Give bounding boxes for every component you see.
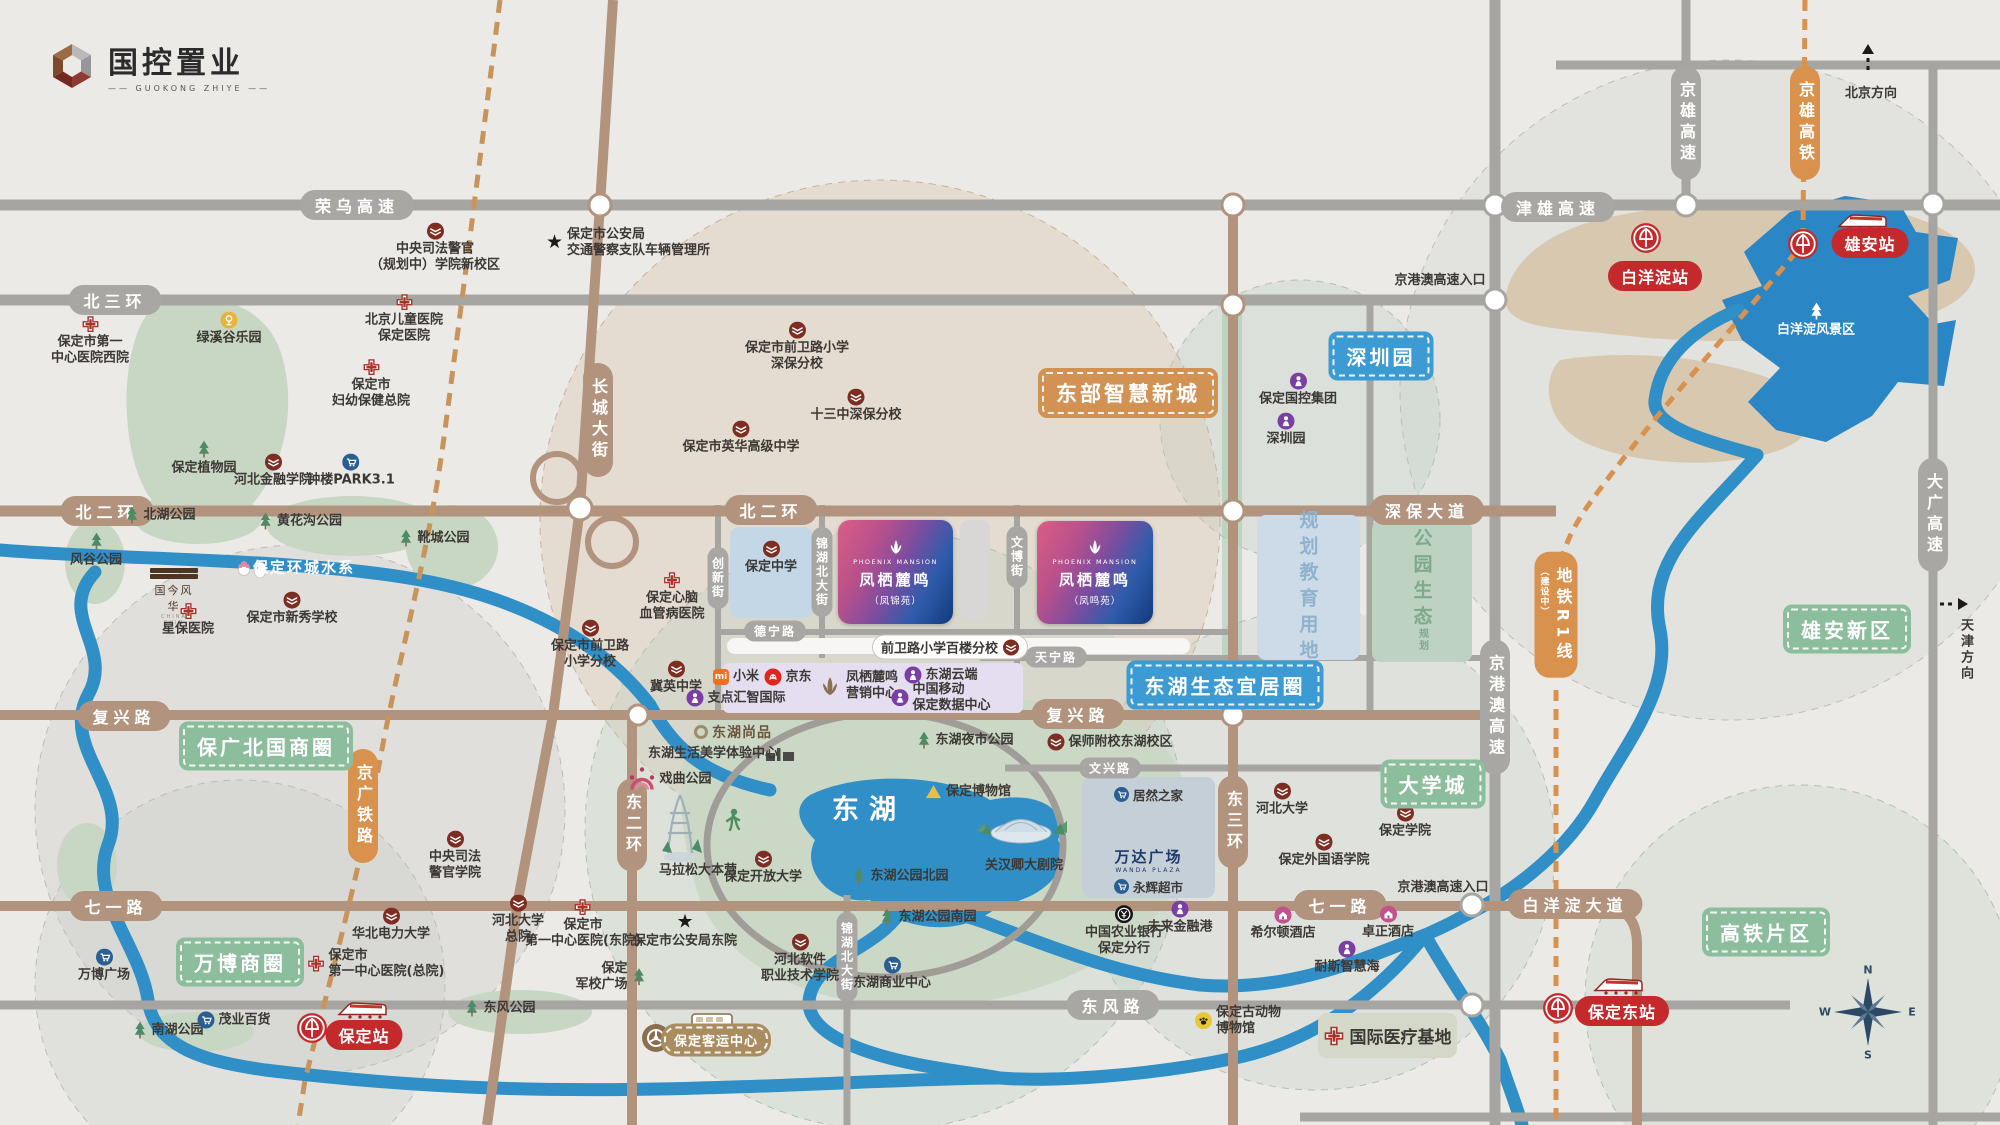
- road-label-text: 白洋淀大道: [1522, 896, 1627, 915]
- area-badge: 高铁片区: [1706, 912, 1826, 953]
- road-label-text: 复兴路: [92, 708, 155, 727]
- map-poi: 星保医院: [162, 603, 214, 638]
- map-poi: 河北软件 职业技术学院: [761, 934, 839, 985]
- international-medical-base-block: 国际医疗基地: [1318, 1013, 1457, 1058]
- enterprise-icon: [686, 690, 703, 707]
- railway-station-icon: [1630, 222, 1662, 254]
- tree-icon: [464, 999, 479, 1018]
- train-illustration: [1591, 976, 1645, 997]
- map-poi: 深圳园: [1266, 413, 1305, 448]
- poi-label: 保定博物馆: [946, 784, 1011, 800]
- compass-w: W: [1819, 1006, 1831, 1019]
- property-name-en: PHOENIX MANSION: [1053, 558, 1138, 566]
- area-badge: 东部智慧新城: [1042, 372, 1214, 414]
- poi-label: 深圳园: [1266, 432, 1305, 448]
- poi-label: 保定市新秀学校: [246, 611, 337, 627]
- map-poi: 河北大学: [1256, 783, 1308, 818]
- road-label: 复兴路: [77, 701, 170, 731]
- map-poi: 靴城公园: [398, 529, 469, 548]
- tree-icon: [1808, 302, 1823, 321]
- road-label-text: 津雄高速: [1516, 199, 1600, 218]
- road-label-text: 京广铁路: [354, 764, 373, 848]
- wanda-plaza-block: 居然之家 万达广场 WANDA PLAZA 永辉超市: [1082, 777, 1215, 898]
- poi-label: 东湖商业中心: [853, 976, 931, 992]
- poi-label: 希尔顿酒店: [1250, 926, 1315, 942]
- road-label: 长城大街: [583, 363, 613, 477]
- tree-icon: [916, 731, 931, 750]
- map-poi: 戏曲公园: [628, 766, 711, 793]
- station-badge: 保定东站: [1575, 996, 1669, 1026]
- road-label: 复兴路: [1031, 699, 1124, 729]
- tianjin-direction-label: 天津方向: [1956, 618, 1975, 682]
- poi-label: 河北金融学院: [234, 473, 312, 489]
- road-label: 德宁路: [744, 621, 806, 642]
- developer-name-en: —— GUOKONG ZHIYE ——: [108, 84, 270, 93]
- map-poi: 东湖公园北园: [851, 867, 948, 886]
- map-poi: 卓正酒店: [1362, 906, 1414, 941]
- poi-label: 保定市 第一中心医院(东院): [525, 918, 641, 950]
- school-icon: [283, 592, 300, 609]
- road-label-text: 锦湖北大街: [815, 537, 829, 607]
- map-poi: 保定市英华高级中学: [682, 421, 799, 456]
- shopping-icon: [95, 949, 112, 966]
- road-label: 京广铁路: [348, 749, 378, 863]
- school-icon: [1315, 834, 1332, 851]
- map-poi: 东湖商业中心: [853, 957, 931, 992]
- school-icon: [762, 541, 779, 558]
- wanda-plaza-en-label: WANDA PLAZA: [1082, 867, 1215, 874]
- jd-icon: [764, 669, 781, 686]
- reserved-grey-block: [960, 520, 990, 620]
- road-label: 大广高速: [1918, 458, 1948, 572]
- shopping-icon: [342, 454, 359, 471]
- yonghui-label: 永辉超市: [1133, 877, 1183, 896]
- poi-label: 保定市前卫路 小学分校: [551, 639, 629, 671]
- hospital-cross-icon: [574, 899, 591, 916]
- map-poi: 保定外国语学院: [1278, 834, 1369, 869]
- museum-icon: [925, 784, 942, 799]
- compass-e: E: [1908, 1006, 1916, 1019]
- poi-label: 保定市前卫路小学 深保分校: [745, 341, 849, 373]
- road-label-text: 创新街: [711, 557, 725, 599]
- map-poi: 未来金融港: [1147, 901, 1212, 936]
- road-label: 京雄高铁: [1790, 66, 1820, 180]
- road-label-text: 德宁路: [754, 625, 796, 639]
- entrance-label: 京港澳高速入口: [1397, 880, 1488, 896]
- map-poi: 茂业百货: [197, 1012, 270, 1029]
- property-unit-name: （凤鸣苑）: [1069, 593, 1122, 607]
- road-label-text: 荣乌高速: [315, 197, 399, 216]
- road-label: 深保大道: [1370, 495, 1484, 525]
- poi-label: 河北大学: [1256, 802, 1308, 818]
- map-poi: 东湖云端: [904, 667, 977, 684]
- school-icon: [1047, 734, 1064, 751]
- road-label-text: 京雄高速: [1677, 81, 1696, 165]
- poi-label: 支点汇智国际: [707, 690, 785, 706]
- map-poi: 中国移动 保定数据中心: [891, 682, 990, 714]
- road-label-text: 七一路: [84, 898, 147, 917]
- school-icon: [791, 934, 808, 951]
- map-poi: 保定博物馆: [925, 784, 1011, 800]
- road-label: 京雄高速: [1671, 66, 1701, 180]
- road-label-text: 文博街: [1010, 536, 1024, 578]
- road-label-text: 文兴路: [1089, 762, 1131, 776]
- station-name: 保定站: [338, 1027, 389, 1046]
- map-poi: 河北金融学院: [234, 454, 312, 489]
- poi-label: 东湖云端: [925, 667, 977, 683]
- poi-label: 黄花沟公园: [277, 513, 342, 529]
- phoenix-mansion-card-fengjin: PHOENIX MANSION 凤栖麓鸣 （凤锦苑）: [838, 520, 953, 624]
- road-label-text: 东风路: [1081, 997, 1144, 1016]
- map-poi: 南湖公园: [132, 1021, 203, 1040]
- tree-icon: [88, 532, 103, 551]
- map-poi: ★保定市公安局东院: [633, 913, 737, 950]
- badge-text: 东部智慧新城: [1056, 382, 1200, 406]
- map-poi: 保定市前卫路 小学分校: [551, 620, 629, 671]
- poi-label: 保定市英华高级中学: [682, 440, 799, 456]
- area-badge: 深圳园: [1333, 336, 1430, 377]
- poi-label: 小米: [733, 669, 759, 685]
- poi-label: 东湖生活美学体验中心: [648, 746, 778, 762]
- map-poi: 东湖公园南园: [879, 908, 976, 927]
- park-eco-label: 公园生态: [1409, 528, 1436, 632]
- road-label-text: 大广高速: [1924, 473, 1943, 557]
- enterprise-icon: [1289, 373, 1306, 390]
- map-poi: 黄花沟公园: [258, 512, 342, 531]
- property-name-en: PHOENIX MANSION: [853, 558, 938, 566]
- road-label: 津雄高速: [1501, 192, 1615, 222]
- road-label-text: 北三环: [83, 292, 146, 311]
- map-poi: 保定国控集团: [1259, 373, 1337, 408]
- map-poi: 保定市 第一中心医院(东院): [525, 899, 641, 950]
- school-icon: [667, 661, 684, 678]
- railway-station: [1542, 992, 1574, 1028]
- tree-icon: [851, 867, 866, 886]
- entrance-label: 京港澳高速入口: [1394, 273, 1485, 289]
- road-label-text: 锦湖北大街: [840, 922, 854, 992]
- juranzhijia-label: 居然之家: [1133, 785, 1183, 804]
- school-icon: [788, 322, 805, 339]
- map-poi: 白洋淀风景区: [1777, 302, 1855, 339]
- road-label: 北二环: [724, 495, 817, 525]
- road-label-text: 京雄高铁: [1796, 81, 1815, 165]
- map-poi: 耐斯智慧海: [1314, 941, 1379, 976]
- station-name: 雄安站: [1844, 235, 1895, 254]
- paw-icon: [1195, 1013, 1212, 1030]
- poi-label: 京东: [785, 669, 811, 685]
- map-poi: 保定中学: [745, 541, 797, 576]
- poi-label: 中国移动 保定数据中心: [912, 682, 990, 714]
- road-label: 东风路: [1066, 990, 1159, 1020]
- road-label: 七一路: [69, 891, 162, 921]
- railway-station: [296, 1012, 328, 1048]
- police-star-icon: ★: [546, 234, 563, 253]
- school-icon: [1273, 783, 1290, 800]
- phoenix-mansion-card-fengming: PHOENIX MANSION 凤栖麓鸣 （凤鸣苑）: [1037, 521, 1153, 624]
- map-poi: 东湖生活美学体验中心: [648, 746, 778, 762]
- badge-text: 保定客运中心: [674, 1035, 758, 1050]
- road-label-sub: （建设中）: [1538, 567, 1551, 663]
- hotel-icon: [1274, 907, 1291, 924]
- school-icon: [264, 454, 281, 471]
- railway-station: [1630, 222, 1662, 258]
- area-badge: 保定客运中心: [664, 1027, 768, 1054]
- developer-name: 国控置业: [108, 38, 270, 82]
- badge-text: 高铁片区: [1720, 922, 1812, 946]
- compass-s: S: [1864, 1049, 1872, 1062]
- poi-label: 关汉卿大剧院: [985, 858, 1063, 874]
- station-name: 白洋淀站: [1621, 268, 1689, 287]
- road-label: 创新街: [708, 547, 729, 609]
- poi-label: 东湖公园北园: [870, 868, 948, 884]
- map-poi: 万博广场: [78, 949, 130, 984]
- poi-label: 保定外国语学院: [1278, 853, 1369, 869]
- map-poi: 北京儿童医院 保定医院: [365, 294, 443, 345]
- shopping-icon: [1114, 879, 1129, 894]
- poi-label: 保定国控集团: [1259, 392, 1337, 408]
- enterprise-icon: [1338, 941, 1355, 958]
- map-poi: 保师附校东湖校区: [1047, 734, 1172, 751]
- property-name-cn: 凤栖麓鸣: [859, 569, 931, 590]
- bank-icon: [1115, 905, 1133, 923]
- area-badge: 东湖生态宜居圈: [1131, 665, 1320, 706]
- medical-base-label: 国际医疗基地: [1350, 1023, 1452, 1048]
- tree-icon: [258, 512, 273, 531]
- poi-label: 东湖公园南园: [898, 909, 976, 925]
- donghu-shangpin-brand: 东湖尚品: [694, 722, 772, 742]
- map-poi: 十三中深保分校: [810, 389, 901, 424]
- school-icon: [509, 895, 526, 912]
- badge-text: 大学城: [1399, 774, 1468, 798]
- school-icon: [732, 421, 749, 438]
- school-icon: [754, 851, 771, 868]
- poi-label: 万博广场: [78, 968, 130, 984]
- road-label-text: 天宁路: [1035, 651, 1077, 665]
- poi-label: 白洋淀风景区: [1777, 323, 1855, 339]
- map-poi: 钟楼PARK3.1: [307, 454, 395, 489]
- road-label: 文博街: [1007, 526, 1028, 588]
- phoenix-logo-icon: [1085, 538, 1105, 556]
- tree-icon: [124, 506, 139, 525]
- map-poi: 京东: [764, 669, 811, 686]
- police-star-icon: ★: [676, 913, 693, 932]
- school-icon: [581, 620, 598, 637]
- train-illustration: [335, 1000, 389, 1021]
- ring-water-label: 保定环城水系: [253, 557, 355, 578]
- expressway-entrance-label: 京港澳高速入口: [1397, 880, 1488, 896]
- road-label: 白洋淀大道: [1507, 889, 1642, 919]
- poi-label: 十三中深保分校: [810, 408, 901, 424]
- map-poi: 中央司法 警官学院: [429, 831, 481, 882]
- tree-icon: [879, 908, 894, 927]
- poi-label: 保定开放大学: [724, 870, 802, 886]
- xiaomi-icon: mi: [713, 669, 729, 685]
- poi-label: 凤栖麓鸣 营销中心: [846, 670, 898, 702]
- poi-label: 保定中学: [745, 560, 797, 576]
- map-poi: 支点汇智国际: [686, 690, 785, 707]
- road-label-text: 长城大街: [589, 378, 608, 462]
- road-label: 北三环: [68, 285, 161, 315]
- hospital-cross-icon: [362, 359, 379, 376]
- map-poi: 保定市第一 中心医院西院: [51, 316, 129, 367]
- badge-text: 雄安新区: [1801, 619, 1893, 643]
- school-pill-label: 前卫路小学百楼分校: [881, 638, 998, 657]
- map-poi: 华北电力大学: [352, 908, 430, 943]
- poi-label: 靴城公园: [417, 530, 469, 546]
- map-poi: 绿溪谷乐园: [196, 312, 261, 347]
- poi-label: 东湖夜市公园: [935, 732, 1013, 748]
- school-icon: [426, 223, 443, 240]
- poi-label: 茂业百货: [218, 1012, 270, 1028]
- property-name-cn: 凤栖麓鸣: [1059, 569, 1131, 590]
- road-label-text: 地铁R1线: [1554, 567, 1573, 663]
- hospital-cross-icon: [663, 572, 680, 589]
- expressway-entrance-label: 京港澳高速入口: [1394, 273, 1485, 289]
- poi-label: 风谷公园: [70, 553, 122, 569]
- area-badge: 保广北国商圈: [183, 726, 349, 767]
- badge-text: 深圳园: [1347, 346, 1416, 370]
- school-icon: [446, 831, 463, 848]
- opera-park-arch-icon: [628, 766, 655, 793]
- road-label: 地铁R1线（建设中）: [1535, 552, 1578, 678]
- poi-label: 保师附校东湖校区: [1068, 734, 1172, 750]
- planning-education-label: 规划教育用地: [1295, 510, 1322, 666]
- tree-icon: [196, 440, 211, 459]
- poi-label: 保定市公安局 交通警察支队车辆管理所: [567, 227, 710, 259]
- poi-label: 北京儿童医院 保定医院: [365, 313, 443, 345]
- beijing-direction-label: 北京方向: [1845, 82, 1897, 101]
- enterprise-icon: [1171, 901, 1188, 918]
- road-label-text: 北二环: [739, 502, 802, 521]
- road-label-text: 复兴路: [1046, 706, 1109, 725]
- map-poi: 保定开放大学: [724, 851, 802, 886]
- map-poi: 保定市 妇幼保健总院: [332, 359, 410, 410]
- map-poi: 保定学院: [1379, 805, 1431, 840]
- compass-n: N: [1863, 964, 1872, 977]
- east-lake-label: 东湖: [832, 788, 906, 827]
- poi-label: 保定古动物 博物馆: [1216, 1005, 1281, 1037]
- railway-station: [1787, 228, 1819, 264]
- hotel-icon: [1379, 906, 1396, 923]
- road-label: 荣乌高速: [300, 190, 414, 220]
- poi-label: 中央司法 警官学院: [429, 850, 481, 882]
- shopping-icon: [883, 957, 900, 974]
- area-badge: 大学城: [1385, 764, 1482, 805]
- poi-label: 星保医院: [162, 622, 214, 638]
- poi-label: 保定 军校广场: [575, 961, 627, 993]
- brand-ring-icon: [694, 725, 708, 739]
- station-badge: 雄安站: [1831, 228, 1908, 258]
- poi-label: 耐斯智慧海: [1314, 960, 1379, 976]
- park-eco-sub-label: 规划: [1415, 628, 1430, 652]
- railway-station-icon: [1787, 228, 1819, 260]
- badge-text: 万博商圈: [194, 952, 286, 976]
- school-icon: [382, 908, 399, 925]
- poi-label: 绿溪谷乐园: [196, 331, 261, 347]
- map-poi: 北湖公园: [124, 506, 195, 525]
- map-poi: 凤栖麓鸣 营销中心: [818, 670, 898, 702]
- school-icon: [1003, 639, 1019, 655]
- map-poi: ★保定市公安局 交通警察支队车辆管理所: [546, 227, 710, 259]
- poi-label: 华北电力大学: [352, 927, 430, 943]
- wanda-plaza-label: 万达广场: [1114, 848, 1182, 866]
- badge-text: 保广北国商圈: [197, 736, 335, 760]
- map-poi: 东风公园: [464, 999, 535, 1018]
- map-poi: 东湖夜市公园: [916, 731, 1013, 750]
- property-unit-name: （凤锦苑）: [869, 593, 922, 607]
- location-map: PHOENIX MANSION 凤栖麓鸣 （凤锦苑） PHOENIX MANSI…: [0, 0, 2000, 1125]
- map-poi: 风谷公园: [70, 532, 122, 569]
- shopping-icon: [1114, 787, 1129, 802]
- hospital-cross-icon: [179, 603, 196, 620]
- map-poi: 保定 军校广场: [575, 961, 646, 993]
- badge-text: 东湖生态宜居圈: [1145, 675, 1306, 699]
- road-label-text: 深保大道: [1385, 502, 1469, 521]
- tree-icon: [132, 1021, 147, 1040]
- poi-label: 钟楼PARK3.1: [307, 473, 395, 489]
- amusement-icon: [220, 312, 237, 329]
- guokong-hexagon-icon: [48, 41, 96, 91]
- road-label: 京港澳高速: [1480, 640, 1510, 775]
- railway-station-icon: [296, 1012, 328, 1044]
- map-poi: 中央司法警官 （规划中）学院新校区: [370, 223, 500, 274]
- enterprise-icon: [904, 667, 921, 684]
- hospital-cross-icon: [395, 294, 412, 311]
- area-badge: 雄安新区: [1787, 609, 1907, 650]
- poi-label: 保定学院: [1379, 824, 1431, 840]
- hospital-icon: [1324, 1026, 1344, 1046]
- map-poi: 保定植物园: [171, 440, 236, 477]
- map-poi: mi小米: [713, 669, 759, 685]
- phoenix-logo-icon: [886, 538, 906, 556]
- poi-label: 中央司法警官 （规划中）学院新校区: [370, 242, 500, 274]
- map-poi: 保定古动物 博物馆: [1195, 1005, 1281, 1037]
- poi-label: 戏曲公园: [659, 771, 711, 787]
- station-badge: 保定站: [325, 1020, 402, 1050]
- road-label: 天宁路: [1025, 647, 1087, 668]
- poi-label: 保定市 第一中心医院(总院): [329, 948, 445, 980]
- poi-label: 保定市公安局东院: [633, 934, 737, 950]
- road-label-text: 东二环: [623, 794, 642, 857]
- shopping-icon: [197, 1012, 214, 1029]
- poi-label: 北湖公园: [143, 507, 195, 523]
- road-label-text: 京港澳高速: [1486, 655, 1505, 760]
- road-label-text: 东三环: [1224, 791, 1243, 854]
- poi-label: 保定心脑 血管病医院: [639, 591, 704, 623]
- bailou-branch-school-pill: 前卫路小学百楼分校: [872, 635, 1028, 660]
- map-poi: 保定市 第一中心医院(总院): [308, 948, 445, 980]
- poi-label: 未来金融港: [1147, 920, 1212, 936]
- enterprise-icon: [1277, 413, 1294, 430]
- railway-station-icon: [1542, 992, 1574, 1024]
- poi-label: 保定植物园: [171, 461, 236, 477]
- tree-icon: [632, 968, 647, 987]
- tree-icon: [398, 529, 413, 548]
- station-badge: 白洋淀站: [1608, 261, 1702, 291]
- road-label: 东三环: [1218, 776, 1248, 869]
- developer-logo: 国控置业 —— GUOKONG ZHIYE ——: [48, 38, 270, 93]
- map-poi: 保定心脑 血管病医院: [639, 572, 704, 623]
- hospital-cross-icon: [308, 956, 325, 973]
- area-badge: 万博商圈: [180, 942, 300, 983]
- poi-label: 保定市 妇幼保健总院: [332, 378, 410, 410]
- poi-label: 保定市第一 中心医院西院: [51, 335, 129, 367]
- poi-label: 河北软件 职业技术学院: [761, 953, 839, 985]
- school-icon: [847, 389, 864, 406]
- road-label: 锦湖北大街: [812, 527, 833, 617]
- map-poi: 希尔顿酒店: [1250, 907, 1315, 942]
- station-name: 保定东站: [1588, 1003, 1656, 1022]
